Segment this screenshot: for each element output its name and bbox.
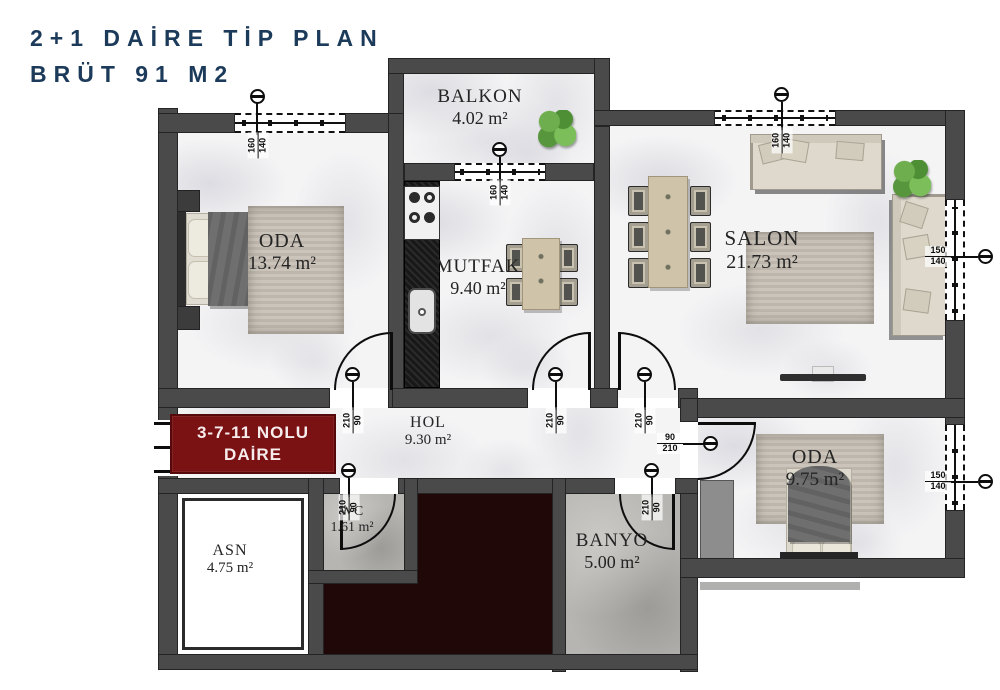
dim-tag: 21090 [343,407,364,433]
dim-flag-icon [548,367,563,382]
room-area: 9.75 m² [745,469,885,491]
room-area: 4.02 m² [415,108,545,129]
wall [680,558,965,578]
dim-tag: 150140 [925,471,951,492]
wall [675,478,698,494]
dim-tag: 160140 [772,127,793,153]
wall [594,110,715,126]
wall [388,58,610,74]
door-leaf [390,332,393,390]
dim-stem [352,382,354,410]
dim-bottom: 140 [259,132,269,158]
chair [628,258,649,288]
plan-title-line2: BRÜT 91 M2 [30,56,384,92]
window [945,425,965,510]
dim-flag-icon [492,142,507,157]
room-name: WC [312,504,392,520]
dim-flag-icon [345,367,360,382]
room-name: ODA [212,230,352,253]
wall [158,654,698,670]
room-area: 4.75 m² [180,560,280,577]
window [715,110,835,126]
room-area: 9.40 m² [408,278,548,299]
core-area [418,494,552,654]
wardrobe [700,480,734,568]
ledge [700,582,860,590]
asn-label: ASN 4.75 m² [180,542,280,577]
dim-flag-icon [250,89,265,104]
dim-flag-icon [978,474,993,489]
room-name: MUTFAK [408,256,548,278]
dim-tag: 150140 [925,246,951,267]
banyo-label: BANYO 5.00 m² [552,530,672,573]
dim-bottom: 90 [653,494,663,520]
chair [628,186,649,216]
dim-flag-icon [703,436,718,451]
wall [398,478,615,494]
wall [158,113,235,133]
pillow [903,288,932,313]
dim-tag: 21090 [642,494,663,520]
dim-stem [644,382,646,410]
dim-flag-icon [341,463,356,478]
stove-burner [409,192,420,203]
wall [594,126,610,408]
dim-tag: 21090 [546,407,567,433]
unit-badge: 3-7-11 NOLU DAİRE [170,414,336,474]
oda1-label: ODA 13.74 m² [212,230,352,275]
wall [158,388,330,408]
dim-tag: 160140 [490,179,511,205]
door-leaf [618,332,621,390]
room-area: 13.74 m² [212,253,352,275]
wc-label: WC 1.61 m² [312,504,392,536]
tv-icon [780,374,866,381]
wall [680,398,698,422]
chair [628,222,649,252]
plan-title-line1: 2+1 DAİRE TİP PLAN [30,20,384,56]
room-name: BALKON [415,86,545,108]
stove-burner [424,212,435,223]
door-leaf [588,332,591,390]
room-name: HOL [368,414,488,432]
dim-flag-icon [774,87,789,102]
dim-bottom: 90 [646,407,656,433]
stove-burner [409,212,420,223]
door-leaf [672,494,675,550]
dim-stem [256,103,258,135]
room-area: 5.00 m² [552,552,672,573]
room-area: 1.61 m² [312,520,392,536]
oda2-label: ODA 9.75 m² [745,446,885,491]
dim-stem [781,102,783,130]
wall [404,478,418,584]
room-name: ASN [180,542,280,560]
window [235,113,345,133]
dim-tag: 90210 [657,433,683,454]
dim-stem [555,382,557,410]
chair [690,186,711,216]
core-area [324,584,418,654]
dim-bottom: 210 [657,444,683,454]
chair [558,278,578,306]
plan-title: 2+1 DAİRE TİP PLAN BRÜT 91 M2 [30,20,384,92]
unit-badge-line1: 3-7-11 NOLU [172,422,334,444]
dim-flag-icon [637,367,652,382]
hol-label: HOL 9.30 m² [368,414,488,449]
room-name: ODA [745,446,885,469]
dim-bottom: 140 [925,482,951,492]
sink-drain [418,308,426,316]
pillow [835,141,864,161]
wall [308,570,418,584]
stove-burner [424,192,435,203]
room-name: BANYO [552,530,672,552]
dim-bottom: 90 [354,407,364,433]
wall [392,388,528,408]
dim-bottom: 140 [501,179,511,205]
wall [545,163,594,181]
wall [552,478,566,672]
dim-bottom: 140 [925,257,951,267]
room-area: 21.73 m² [692,251,832,274]
room-area: 9.30 m² [368,432,488,449]
chair [558,244,578,272]
dim-tag: 160140 [248,132,269,158]
dim-tag: 21090 [635,407,656,433]
dining-table [648,176,688,288]
dim-flag-icon [644,463,659,478]
dim-bottom: 90 [557,407,567,433]
dim-bottom: 140 [783,127,793,153]
dim-flag-icon [978,249,993,264]
room-name: SALON [692,226,832,251]
salon-label: SALON 21.73 m² [692,226,832,274]
balkon-label: BALKON 4.02 m² [415,86,545,129]
plant-icon [893,160,931,198]
unit-badge-line2: DAİRE [172,444,334,466]
wall [590,388,618,408]
wall [404,163,455,181]
wall [680,398,965,418]
floor-plan: 2+1 DAİRE TİP PLAN BRÜT 91 M2 [0,0,1000,690]
wall [945,110,965,200]
door-leaf [698,422,756,425]
mutfak-label: MUTFAK 9.40 m² [408,256,548,299]
dim-stem [499,157,501,182]
